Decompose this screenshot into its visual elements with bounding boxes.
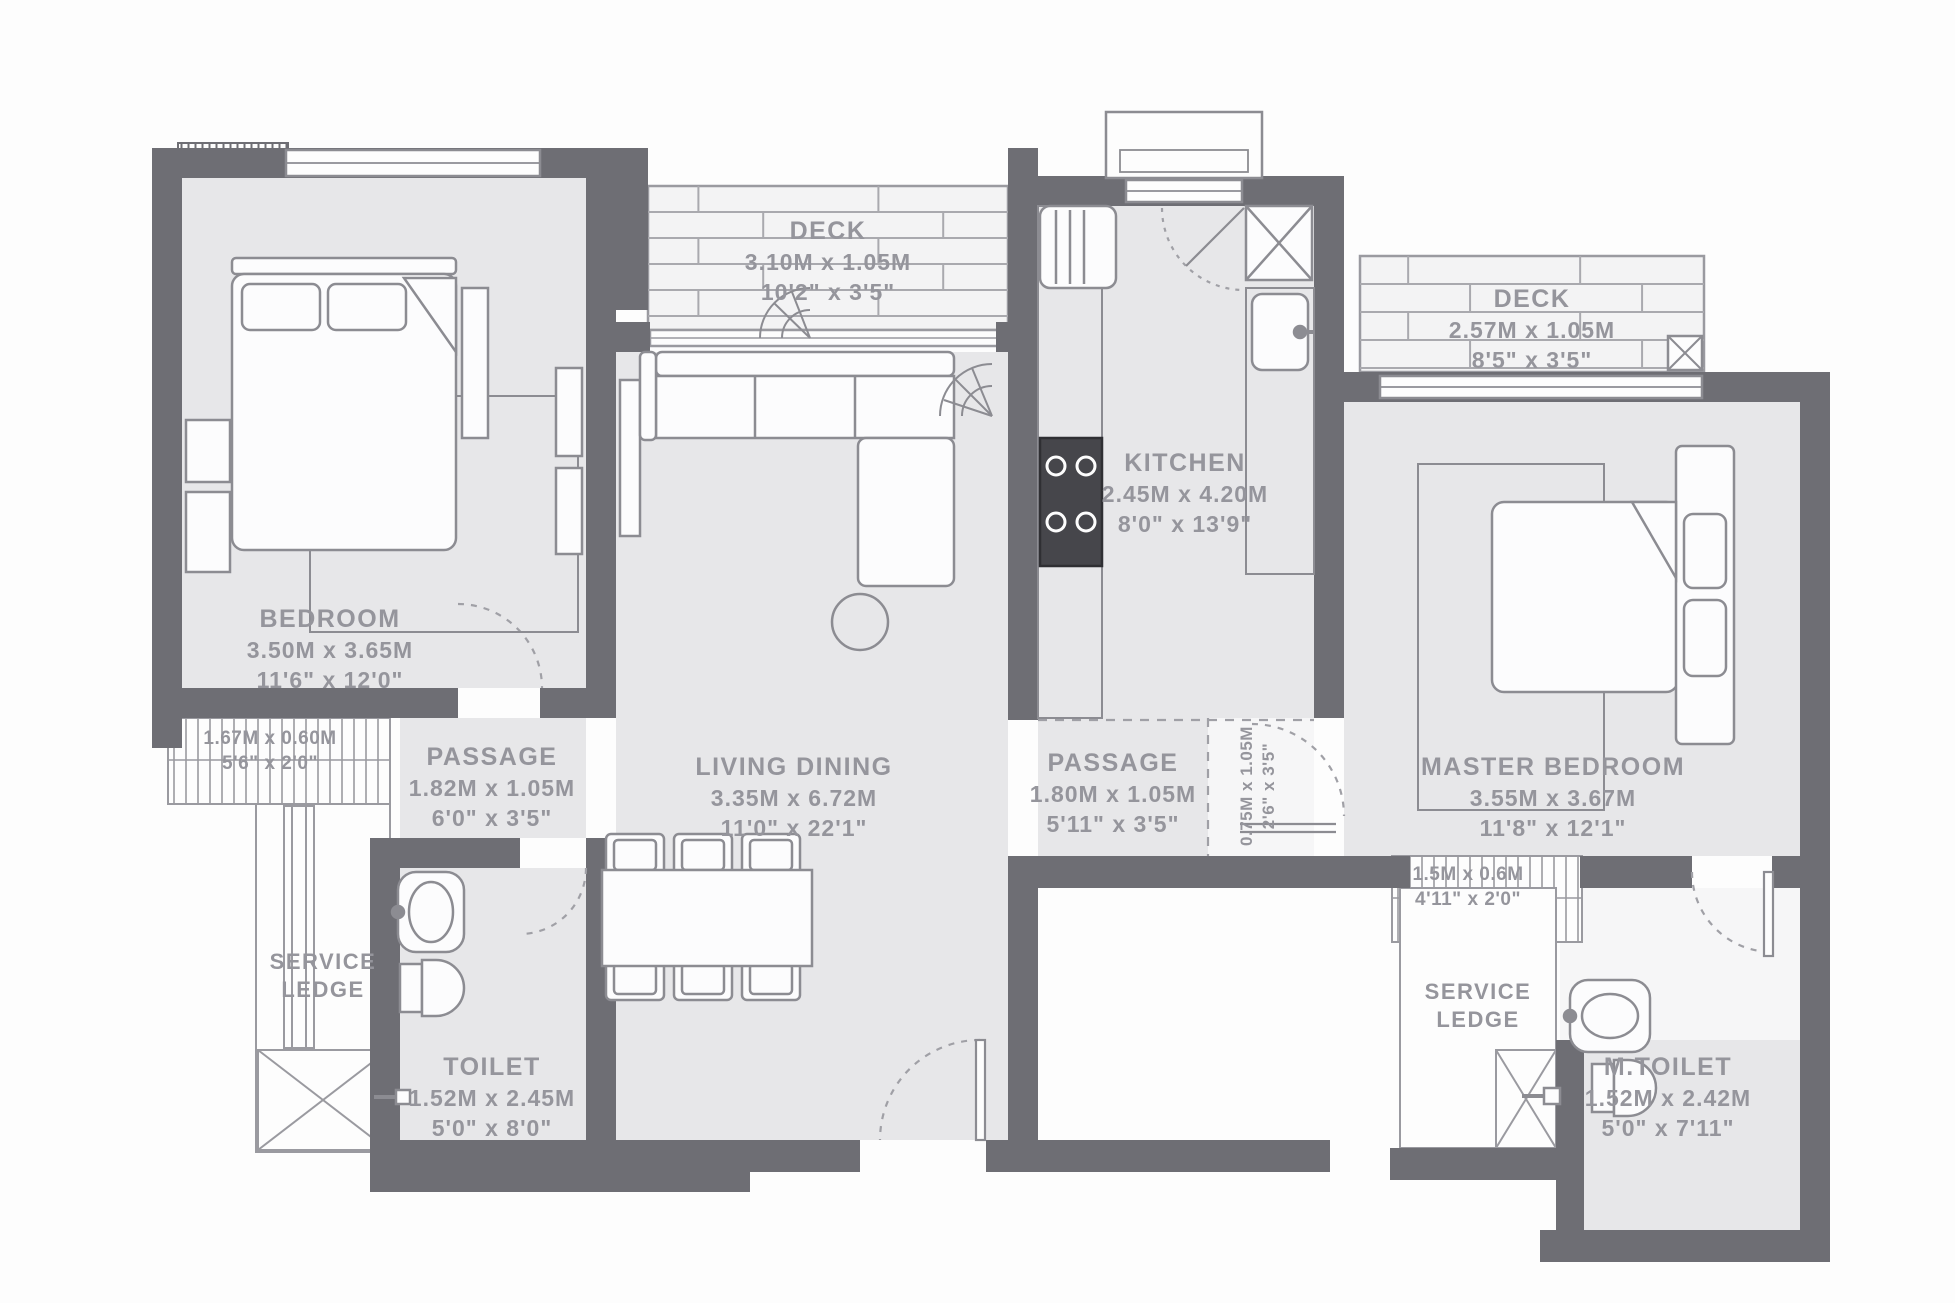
room-label-m-toilet: M.TOILET 1.52M x 2.42M 5'0" x 7'11" — [1548, 1052, 1788, 1143]
room-imperial: 5'11" x 3'5" — [993, 809, 1233, 839]
room-name: MASTER BEDROOM — [1408, 752, 1698, 783]
room-metric: 1.82M x 1.05M — [372, 773, 612, 803]
room-name: KITCHEN — [1060, 448, 1310, 479]
pillow-icon — [328, 284, 406, 330]
kitchen-shaft-xbox — [1246, 206, 1312, 280]
sofa-armrest — [640, 352, 656, 440]
room-label-kitchen: KITCHEN 2.45M x 4.20M 8'0" x 13'9" — [1060, 448, 1310, 539]
room-metric: 3.10M x 1.05M — [700, 247, 956, 277]
master-headboard — [1676, 446, 1734, 744]
ledge-imperial: 5'6" x 2'0" — [168, 751, 372, 776]
ledge-metric: 1.67M x 0.60M — [168, 726, 372, 751]
nightstand-icon — [186, 420, 230, 482]
room-metric: 1.52M x 2.42M — [1548, 1083, 1788, 1113]
master-window — [1380, 376, 1702, 398]
sofa-back — [656, 352, 954, 376]
dresser-icon — [462, 288, 488, 438]
room-imperial: 6'0" x 3'5" — [372, 803, 612, 833]
room-name: BEDROOM — [200, 604, 460, 635]
ledge-metric: 1.5M x 0.6M — [1368, 862, 1568, 887]
room-metric: 3.50M x 3.65M — [200, 635, 460, 665]
room-imperial: 5'0" x 8'0" — [372, 1113, 612, 1143]
room-label-toilet: TOILET 1.52M x 2.45M 5'0" x 8'0" — [372, 1052, 612, 1143]
room-imperial: 11'6" x 12'0" — [200, 665, 460, 695]
wardrobe-icon — [556, 368, 582, 456]
room-name: SERVICE — [262, 948, 384, 976]
wash-basin-icon — [392, 872, 464, 952]
kitchen-shaft-box — [1106, 112, 1262, 178]
service-left-shaft-box — [258, 1050, 388, 1150]
room-name: DECK — [700, 216, 956, 247]
room-name: M.TOILET — [1548, 1052, 1788, 1083]
mtoilet-door-leaf — [1764, 872, 1773, 956]
room-name: LIVING DINING — [664, 752, 924, 783]
service-ledge-left-strip — [284, 806, 314, 1048]
room-metric: 1.52M x 2.45M — [372, 1083, 612, 1113]
room-imperial: 11'8" x 12'1" — [1408, 813, 1698, 843]
dining-table-icon — [602, 870, 812, 966]
room-name: TOILET — [372, 1052, 612, 1083]
room-label-living-dining: LIVING DINING 3.35M x 6.72M 11'0" x 22'1… — [664, 752, 924, 843]
dining-set — [602, 834, 812, 1000]
room-name: PASSAGE — [372, 742, 612, 773]
foyer-label: 0.75M x 1.05M 2'6" x 3'5" — [1235, 711, 1281, 861]
room-imperial: 11'0" x 22'1" — [664, 813, 924, 843]
room-name: LEDGE — [1406, 1006, 1550, 1034]
bedroom-window — [286, 150, 540, 176]
foyer-metric: 0.75M x 1.05M — [1236, 711, 1258, 861]
wash-basin-icon — [1564, 980, 1650, 1052]
pillow-icon — [1684, 514, 1726, 588]
room-metric: 2.45M x 4.20M — [1060, 479, 1310, 509]
sofa-chaise — [858, 438, 954, 586]
room-imperial: 5'0" x 7'11" — [1548, 1113, 1788, 1143]
room-label-service-ledge-left: SERVICE LEDGE — [262, 948, 384, 1004]
tv-console-icon — [620, 380, 640, 536]
room-label-master-bedroom: MASTER BEDROOM 3.55M x 3.67M 11'8" x 12'… — [1408, 752, 1698, 843]
kitchen-sink-icon — [1252, 294, 1314, 370]
room-metric: 2.57M x 1.05M — [1404, 315, 1660, 345]
fridge-icon — [1040, 206, 1116, 288]
sofa-seat — [656, 376, 954, 438]
deck-right-shaft-box — [1668, 336, 1702, 370]
room-name: DECK — [1404, 284, 1660, 315]
room-imperial: 10'2" x 3'5" — [700, 277, 956, 307]
room-metric: 3.35M x 6.72M — [664, 783, 924, 813]
foyer-imperial: 2'6" x 3'5" — [1258, 711, 1280, 861]
main-door-leaf — [976, 1040, 985, 1140]
room-metric: 1.80M x 1.05M — [993, 779, 1233, 809]
room-label-service-ledge-right: SERVICE LEDGE — [1406, 978, 1550, 1034]
nightstand-icon — [186, 492, 230, 572]
room-metric: 3.55M x 3.67M — [1408, 783, 1698, 813]
floor-plan-canvas: BEDROOM 3.50M x 3.65M 11'6" x 12'0" DECK… — [0, 0, 1955, 1303]
room-label-deck-left: DECK 3.10M x 1.05M 10'2" x 3'5" — [700, 216, 956, 307]
room-name: PASSAGE — [993, 748, 1233, 779]
room-label-passage-left: PASSAGE 1.82M x 1.05M 6'0" x 3'5" — [372, 742, 612, 833]
room-label-deck-right: DECK 2.57M x 1.05M 8'5" x 3'5" — [1404, 284, 1660, 375]
bed-headboard — [232, 258, 456, 274]
pillow-icon — [1684, 600, 1726, 676]
wc-icon — [400, 960, 464, 1016]
room-label-bedroom: BEDROOM 3.50M x 3.65M 11'6" x 12'0" — [200, 604, 460, 695]
ledge-imperial: 4'11" x 2'0" — [1368, 887, 1568, 912]
ledge-label-right: 1.5M x 0.6M 4'11" x 2'0" — [1368, 862, 1568, 912]
room-name: LEDGE — [262, 976, 384, 1004]
room-name: SERVICE — [1406, 978, 1550, 1006]
pillow-icon — [242, 284, 320, 330]
room-imperial: 8'5" x 3'5" — [1404, 345, 1660, 375]
room-label-passage-right: PASSAGE 1.80M x 1.05M 5'11" x 3'5" — [993, 748, 1233, 839]
room-imperial: 8'0" x 13'9" — [1060, 509, 1310, 539]
ledge-label-left: 1.67M x 0.60M 5'6" x 2'0" — [168, 726, 372, 776]
wardrobe-icon — [556, 468, 582, 554]
kitchen-window — [1126, 180, 1242, 202]
